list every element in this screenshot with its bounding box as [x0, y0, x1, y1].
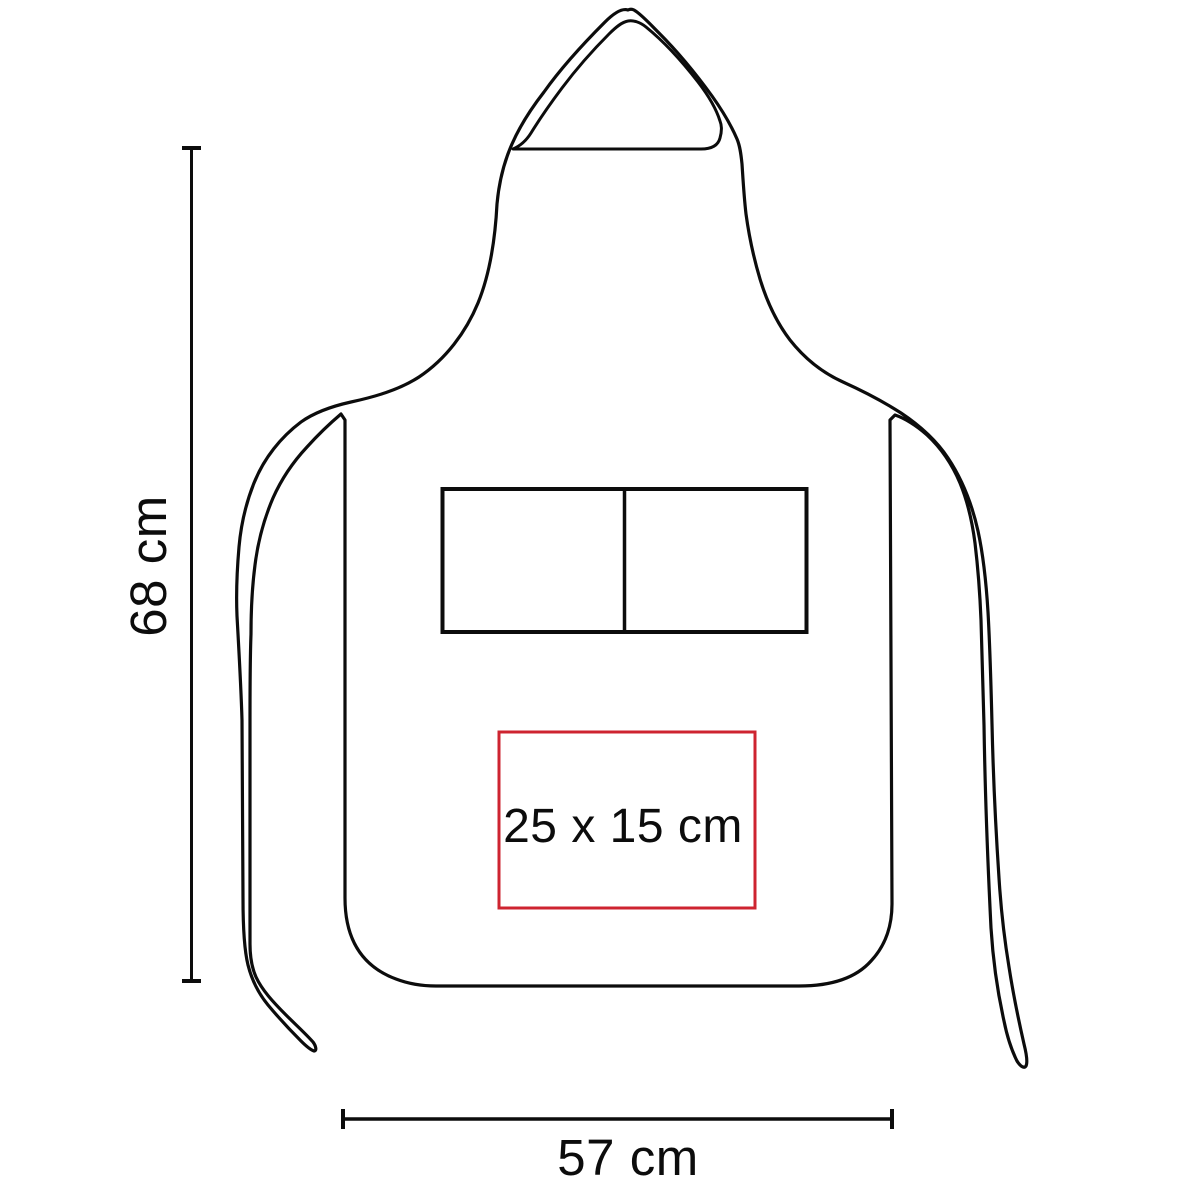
height-dimension-label: 68 cm [120, 495, 177, 636]
width-dimension-label: 57 cm [557, 1129, 698, 1186]
apron-dimension-diagram: 25 x 15 cm 68 cm 57 cm [0, 0, 1200, 1200]
diagram-container: 25 x 15 cm 68 cm 57 cm [0, 0, 1200, 1200]
print-area-label: 25 x 15 cm [503, 800, 743, 853]
